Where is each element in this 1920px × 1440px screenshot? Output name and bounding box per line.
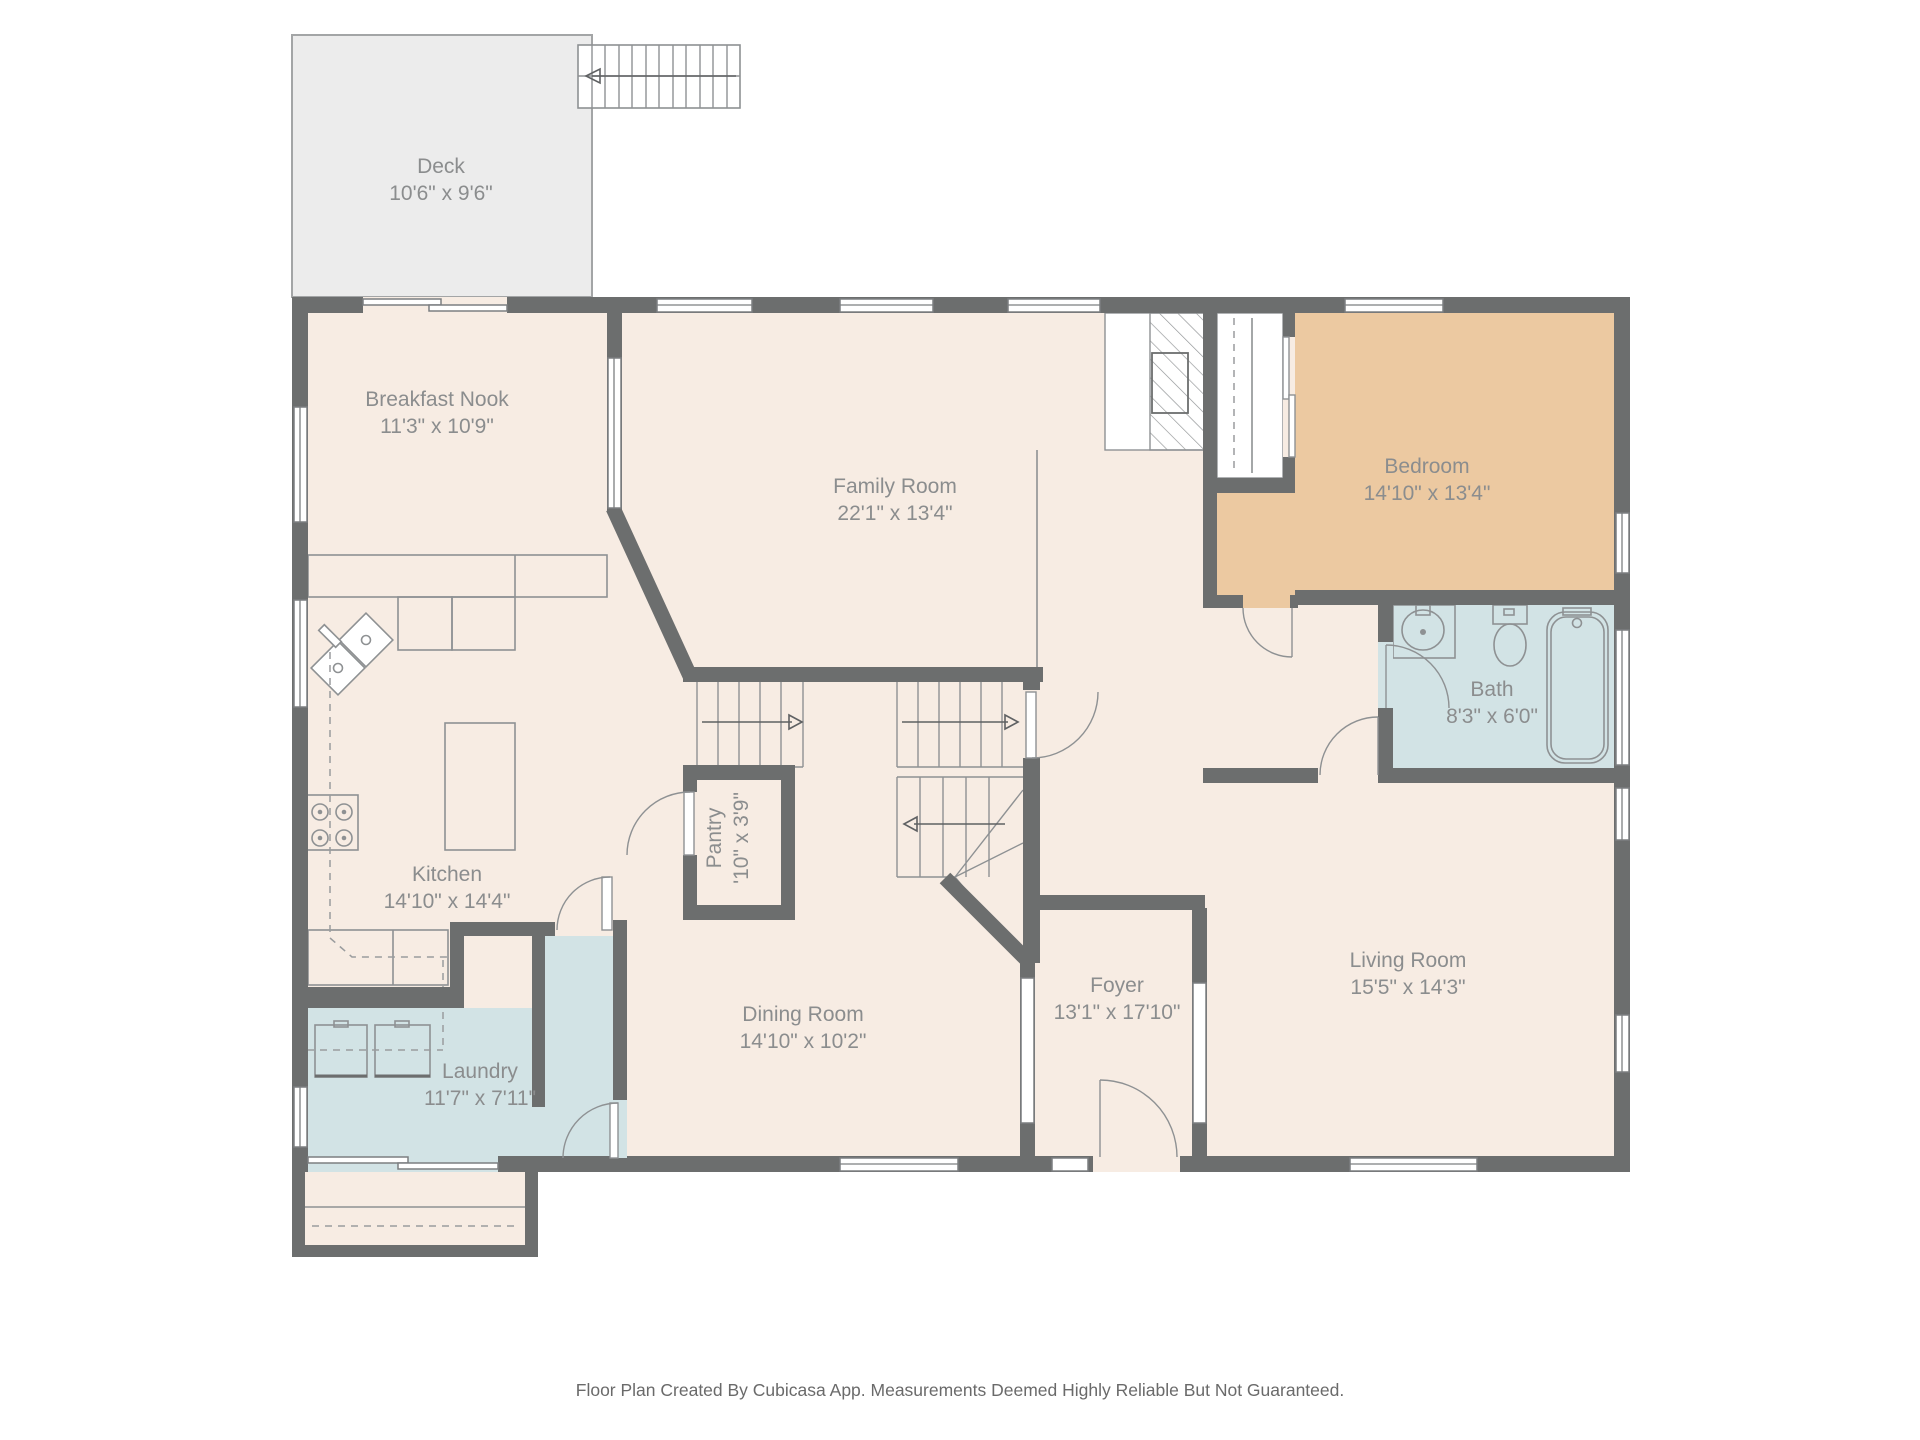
room-dims: 14'10" x 10'2"	[740, 1028, 867, 1055]
room-name: Family Room	[833, 473, 957, 500]
room-name: Deck	[389, 153, 493, 180]
room-label-pantry: Pantry '10" x 3'9"	[701, 792, 755, 884]
room-label-kitchen: Kitchen 14'10" x 14'4"	[384, 861, 511, 915]
closet-slider-doors	[1283, 337, 1295, 457]
room-label-dining-room: Dining Room 14'10" x 10'2"	[740, 1001, 867, 1055]
room-dims: 14'10" x 14'4"	[384, 888, 511, 915]
room-dims: 13'1" x 17'10"	[1054, 999, 1181, 1026]
room-label-bath: Bath 8'3" x 6'0"	[1446, 676, 1538, 730]
window-bedroom-right	[1616, 513, 1629, 573]
room-name: Living Room	[1350, 947, 1467, 974]
window-top-3	[1008, 299, 1100, 312]
window-nook-divider	[608, 358, 621, 508]
room-dims: 11'7" x 7'11"	[424, 1085, 536, 1112]
room-name: Breakfast Nook	[365, 386, 509, 413]
room-name: Bedroom	[1364, 453, 1491, 480]
room-label-bedroom: Bedroom 14'10" x 13'4"	[1364, 453, 1491, 507]
room-label-breakfast-nook: Breakfast Nook 11'3" x 10'9"	[365, 386, 509, 440]
room-label-deck: Deck 10'6" x 9'6"	[389, 153, 493, 207]
window-living-1	[1616, 788, 1629, 840]
room-dims: 22'1" x 13'4"	[833, 500, 957, 527]
room-label-family-room: Family Room 22'1" x 13'4"	[833, 473, 957, 527]
floor-plan-canvas	[0, 0, 1920, 1440]
room-label-living-room: Living Room 15'5" x 14'3"	[1350, 947, 1467, 1001]
closet-floor	[1217, 313, 1283, 478]
opening-dining-foyer	[1021, 978, 1034, 1123]
room-name: Pantry	[701, 792, 728, 884]
window-top-1	[657, 299, 752, 312]
floor-plan-page: Deck 10'6" x 9'6" Breakfast Nook 11'3" x…	[0, 0, 1920, 1440]
room-name: Kitchen	[384, 861, 511, 888]
room-dims: 11'3" x 10'9"	[365, 413, 509, 440]
window-foyer-small	[1052, 1158, 1088, 1171]
opening-foyer-living	[1193, 983, 1206, 1123]
laundry-slider-door	[308, 1156, 498, 1172]
window-left-1	[294, 407, 307, 522]
bedroom-floor	[1295, 313, 1614, 590]
room-name: Bath	[1446, 676, 1538, 703]
window-laundry	[294, 1087, 307, 1147]
deck-area	[292, 35, 740, 297]
room-dims: 10'6" x 9'6"	[389, 180, 493, 207]
room-name: Laundry	[424, 1058, 536, 1085]
window-left-2	[294, 600, 307, 707]
room-label-foyer: Foyer 13'1" x 17'10"	[1054, 972, 1181, 1026]
window-bath	[1616, 630, 1629, 765]
room-dims: 15'5" x 14'3"	[1350, 974, 1467, 1001]
deck-slider-door	[363, 297, 507, 313]
room-dims: 8'3" x 6'0"	[1446, 703, 1538, 730]
bedroom-vestibule-floor	[1217, 493, 1295, 595]
room-label-laundry: Laundry 11'7" x 7'11"	[424, 1058, 536, 1112]
window-dining	[840, 1158, 958, 1171]
stove	[307, 795, 358, 850]
deck-stairs	[578, 45, 740, 108]
window-living-2	[1616, 1015, 1629, 1072]
window-living-bottom	[1350, 1158, 1477, 1171]
room-name: Foyer	[1054, 972, 1181, 999]
room-name: Dining Room	[740, 1001, 867, 1028]
window-top-2	[840, 299, 933, 312]
window-bedroom-top	[1345, 299, 1443, 312]
room-dims: 14'10" x 13'4"	[1364, 480, 1491, 507]
room-dims: '10" x 3'9"	[728, 792, 755, 884]
footer-disclaimer: Floor Plan Created By Cubicasa App. Meas…	[0, 1380, 1920, 1401]
